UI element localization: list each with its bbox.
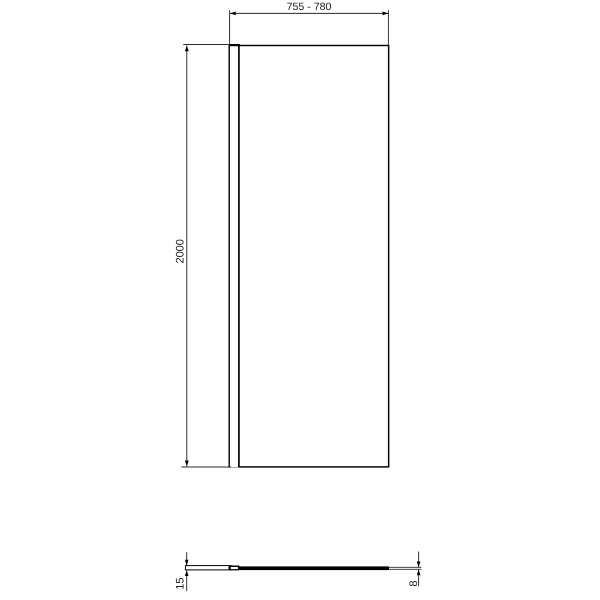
svg-text:755 - 780: 755 - 780 xyxy=(287,1,332,13)
svg-text:8: 8 xyxy=(408,580,420,586)
svg-text:2000: 2000 xyxy=(174,239,186,263)
svg-text:15: 15 xyxy=(175,577,187,589)
